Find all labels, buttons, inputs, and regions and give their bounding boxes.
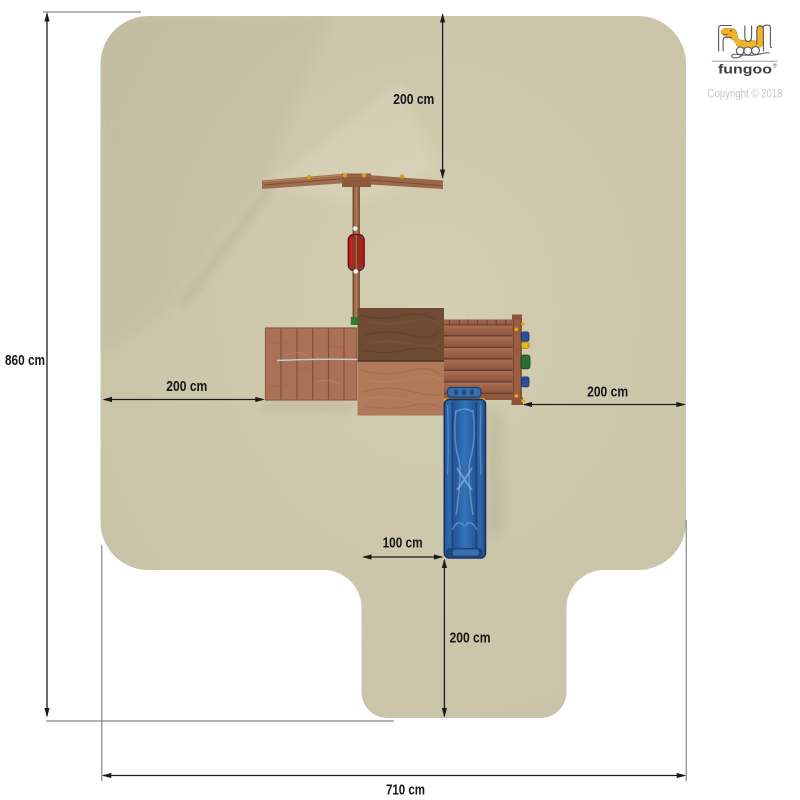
svg-text:200 cm: 200 cm xyxy=(166,379,207,395)
svg-text:100 cm: 100 cm xyxy=(383,536,423,552)
svg-text:200 cm: 200 cm xyxy=(587,385,628,401)
svg-text:fungoo: fungoo xyxy=(718,62,772,77)
svg-text:Copyright © 2018: Copyright © 2018 xyxy=(708,89,783,101)
svg-text:710 cm: 710 cm xyxy=(386,782,425,798)
svg-text:200 cm: 200 cm xyxy=(393,92,434,108)
svg-text:860 cm: 860 cm xyxy=(5,353,45,369)
svg-text:®: ® xyxy=(773,63,777,70)
svg-text:200 cm: 200 cm xyxy=(450,631,491,647)
